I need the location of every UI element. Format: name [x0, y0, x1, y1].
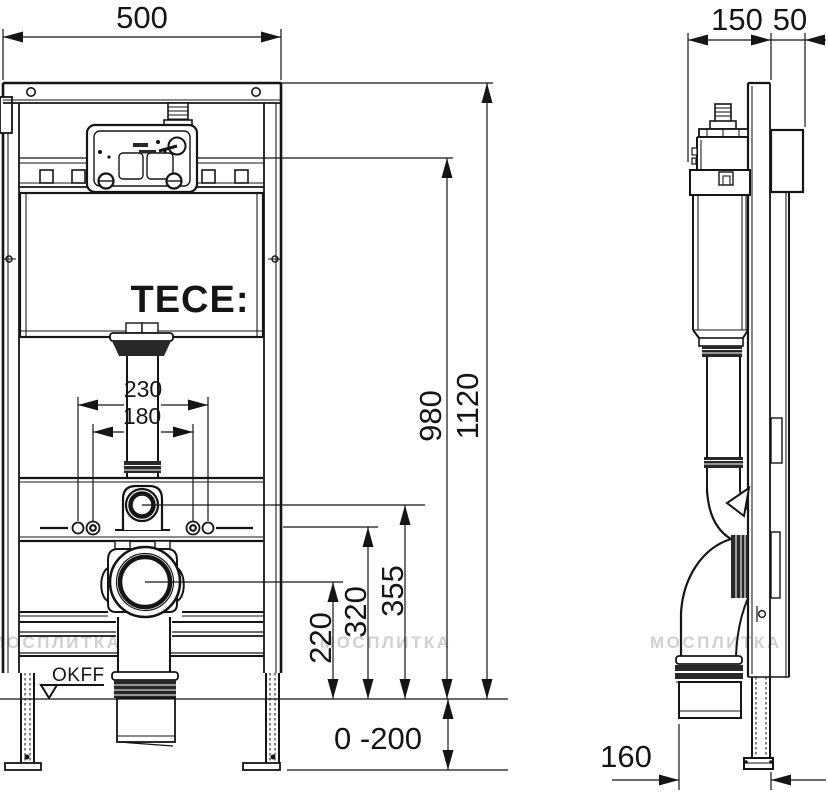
- floor-level: OKFF: [0, 665, 508, 699]
- anchor-hole: [203, 523, 214, 534]
- dim-leg-adjustment: 0 -200: [287, 699, 508, 770]
- foot-plate: [243, 763, 280, 770]
- level-marker-icon: [41, 685, 57, 698]
- dim-label-355: 355: [375, 565, 410, 617]
- hanger-bolt-hole: [27, 88, 35, 96]
- dim-label-230: 230: [124, 376, 162, 402]
- cistern: TECE:: [20, 193, 263, 337]
- flush-unit-box: [87, 103, 197, 192]
- dim-label-160: 160: [600, 739, 652, 774]
- side-leg: [744, 677, 773, 769]
- foot-plate: [5, 763, 41, 770]
- dim-label-150: 150: [711, 2, 763, 37]
- dim-label-50: 50: [773, 2, 807, 37]
- floor-level-label: OKFF: [52, 665, 105, 686]
- dim-flush-pipe-height: 355: [142, 505, 425, 699]
- watermark-text: МОСПЛИТКА: [650, 633, 782, 652]
- rail-tab: [202, 170, 215, 183]
- dim-label-320: 320: [338, 586, 373, 638]
- dim-frame-width: 500: [3, 0, 281, 80]
- dim-label-0-200: 0 -200: [334, 721, 422, 756]
- pipe-clamp: [771, 532, 780, 598]
- rail-tab: [72, 170, 85, 183]
- dim-label-180: 180: [123, 403, 161, 429]
- cistern-profile: [690, 104, 750, 357]
- flush-bend-side: [704, 357, 749, 598]
- mounting-crossbar: [20, 478, 263, 541]
- filling-valve-pipe-side: [715, 104, 731, 122]
- actuator-plate-zone: [771, 130, 803, 192]
- rail-tab: [235, 170, 248, 183]
- dim-upper-fixing-height: 980: [413, 158, 453, 699]
- dim-label-1120: 1120: [450, 373, 485, 440]
- side-view: [675, 83, 803, 769]
- anchor-hole: [73, 523, 84, 534]
- dim-plate-depth: 50: [771, 2, 826, 127]
- top-crossbar: [3, 83, 281, 103]
- dim-label-500: 500: [116, 0, 168, 35]
- drain-socket-side: [679, 682, 741, 718]
- anchor-hole: [187, 522, 200, 535]
- anchor-hole: [87, 522, 100, 535]
- installation-drawing: МОСПЛИТКА МОСПЛИТКА МОСПЛИТКА: [0, 0, 828, 800]
- dim-label-220: 220: [303, 612, 338, 664]
- rail-tab: [40, 170, 53, 183]
- rail-adjust-hole: [759, 611, 766, 618]
- hanger-rail: [19, 158, 453, 187]
- dim-drain-offset: 160: [600, 724, 826, 790]
- drain-socket-front: [112, 656, 178, 746]
- brand-logo: TECE:: [131, 279, 250, 321]
- hanger-bolt-hole: [252, 88, 260, 96]
- dim-label-980: 980: [413, 390, 448, 442]
- pipe-clamp: [771, 418, 782, 463]
